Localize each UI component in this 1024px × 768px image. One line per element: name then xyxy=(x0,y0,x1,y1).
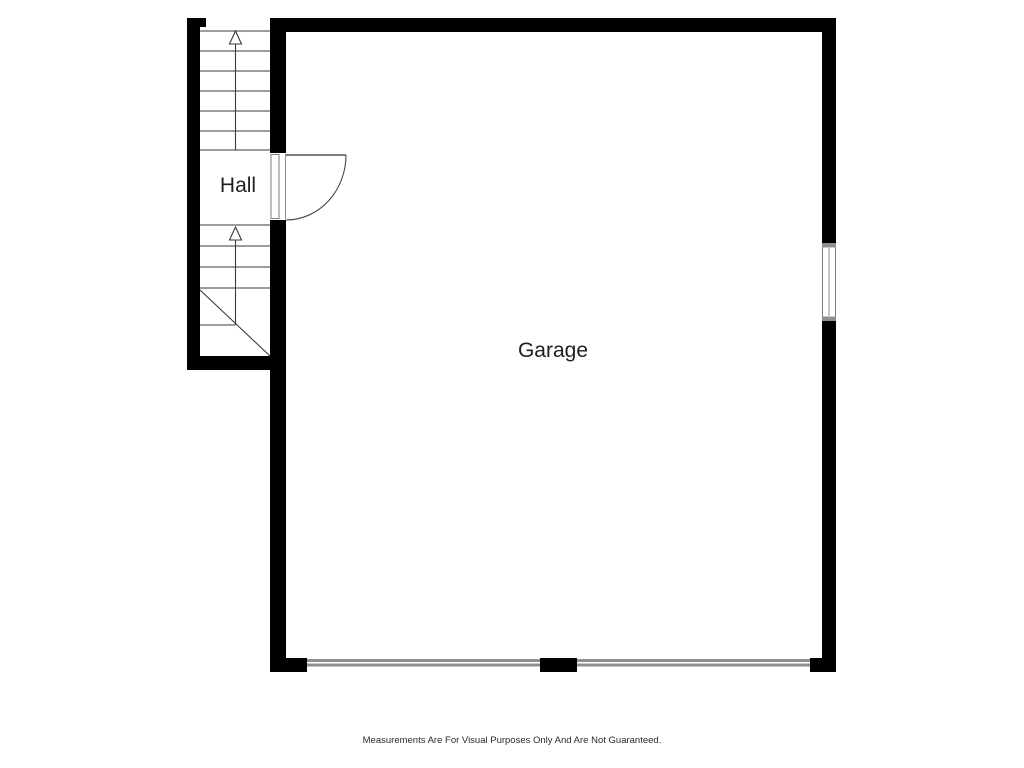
garage-left-wall xyxy=(270,18,286,672)
stairwell-left-wall xyxy=(187,18,200,370)
garage-door-panel-line xyxy=(307,659,540,662)
garage-top-wall xyxy=(270,18,836,32)
right-wall-window xyxy=(822,243,836,321)
garage-right-wall xyxy=(822,18,836,672)
staircase-upper-run xyxy=(200,31,270,150)
stair-up-arrow-icon xyxy=(230,31,242,44)
floor-plan-svg: Hall Garage xyxy=(0,0,1024,768)
door-swing-arc xyxy=(286,155,346,220)
stair-up-arrow-icon xyxy=(230,227,242,240)
window-top-cap xyxy=(822,243,836,248)
garage-door-panel-line xyxy=(577,659,810,662)
floor-plan: Hall Garage xyxy=(0,0,1024,768)
hall-room-label: Hall xyxy=(220,174,256,197)
door-frame xyxy=(271,155,279,219)
window-bottom-cap xyxy=(822,317,836,322)
hall-garage-door xyxy=(270,153,346,220)
garage-door-left xyxy=(307,658,540,672)
garage-door-panel-line xyxy=(577,664,810,667)
disclaimer-text: Measurements Are For Visual Purposes Onl… xyxy=(0,735,1024,746)
garage-door-panel-line xyxy=(307,664,540,667)
garage-room-label: Garage xyxy=(518,339,588,362)
garage-door-right xyxy=(577,658,810,672)
garage-room: Garage xyxy=(270,18,836,672)
staircase-lower-run xyxy=(200,225,270,356)
